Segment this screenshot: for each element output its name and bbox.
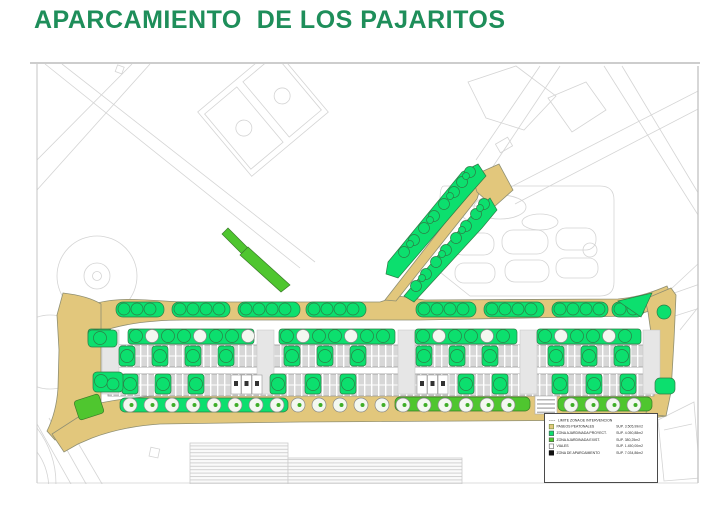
dash-swatch: [549, 420, 555, 421]
legend-item-aparcamiento: ZONA DE APARCAMIENTO SUP. 7.034,86m2: [549, 450, 651, 455]
sports-courts: [198, 48, 329, 177]
white-swatch: [549, 444, 554, 449]
existing-green-stripes: [222, 228, 290, 292]
hatched-buildings: [190, 443, 462, 487]
tan-swatch: [549, 424, 554, 429]
legend-item-paseos: PASEOS PEATONALES SUP. 3.505,99m2: [549, 424, 651, 429]
legend-item-limite: LIMITE ZONA DE INTERVENCION: [549, 419, 651, 423]
legend-item-ajardinada-proyecto: ZONA AJARDINADA PROYECT. SUP. 4.050,88m2: [549, 431, 651, 436]
green-exist-swatch: [549, 437, 554, 442]
green-project-swatch: [549, 431, 554, 436]
garden-strip: [88, 329, 641, 344]
zebra-crossing: [535, 396, 557, 414]
legend-item-viales: VIALES SUP. 1.450,00m2: [549, 444, 651, 449]
legend-item-ajardinada-existente: ZONA AJARDINADA EXIST. SUP. 380,25m2: [549, 437, 651, 442]
black-swatch: [549, 450, 554, 455]
legend-box: LIMITE ZONA DE INTERVENCION PASEOS PEATO…: [544, 413, 658, 483]
